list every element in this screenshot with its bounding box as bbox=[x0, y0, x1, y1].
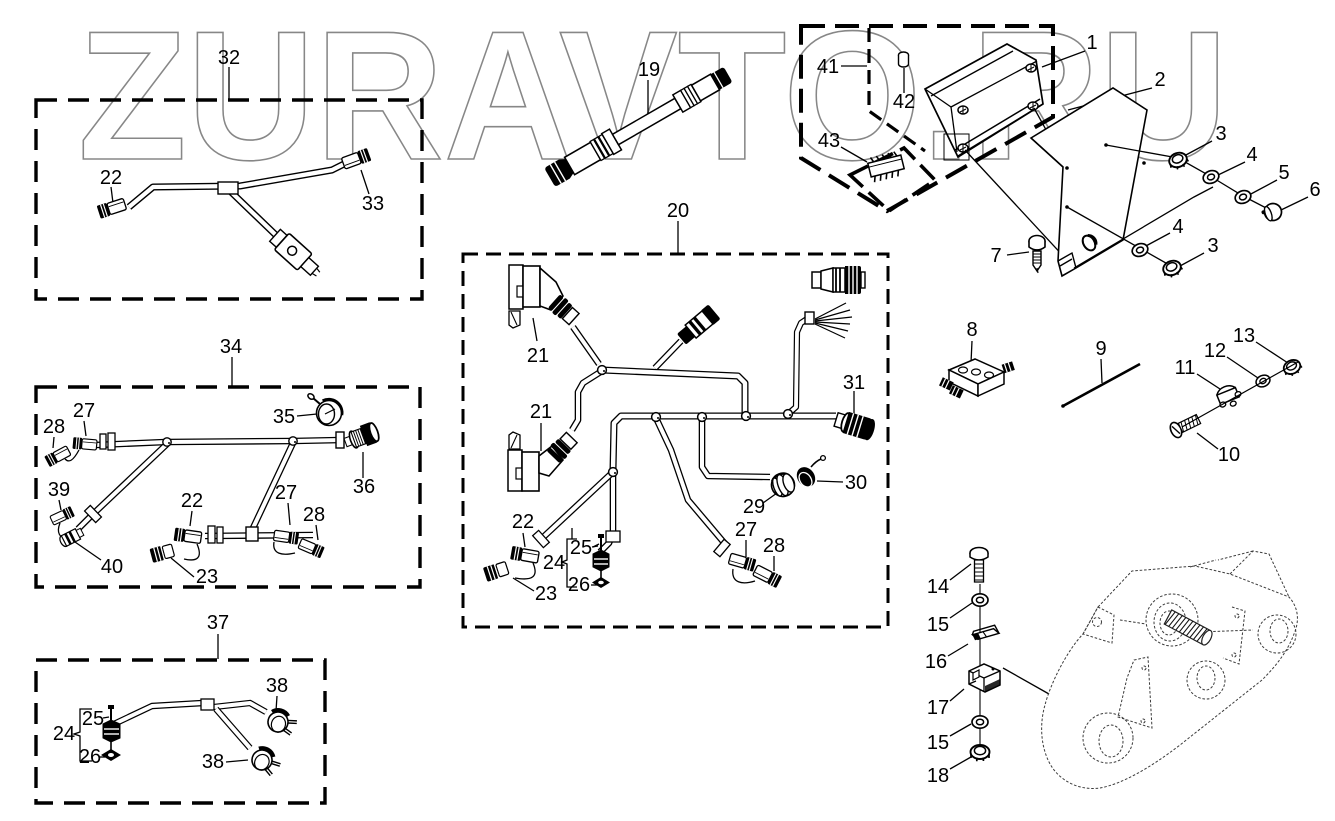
svg-text:27: 27 bbox=[275, 482, 297, 504]
svg-text:15: 15 bbox=[927, 614, 949, 636]
svg-text:32: 32 bbox=[218, 47, 240, 69]
svg-text:29: 29 bbox=[743, 496, 765, 518]
svg-text:34: 34 bbox=[220, 336, 242, 358]
svg-text:28: 28 bbox=[303, 504, 325, 526]
svg-text:25: 25 bbox=[570, 537, 592, 559]
svg-text:26: 26 bbox=[568, 574, 590, 596]
svg-text:11: 11 bbox=[1175, 357, 1196, 379]
svg-text:19: 19 bbox=[638, 59, 660, 81]
svg-text:4: 4 bbox=[1172, 216, 1183, 238]
svg-text:31: 31 bbox=[843, 372, 865, 394]
svg-text:10: 10 bbox=[1218, 444, 1240, 466]
svg-text:39: 39 bbox=[48, 479, 70, 501]
svg-text:7: 7 bbox=[990, 245, 1001, 267]
svg-text:3: 3 bbox=[1207, 235, 1218, 257]
svg-text:23: 23 bbox=[196, 566, 218, 588]
svg-text:18: 18 bbox=[927, 765, 949, 787]
svg-text:30: 30 bbox=[845, 472, 867, 494]
svg-text:15: 15 bbox=[927, 732, 949, 754]
svg-text:22: 22 bbox=[100, 167, 122, 189]
svg-text:6: 6 bbox=[1309, 179, 1320, 201]
svg-text:5: 5 bbox=[1278, 162, 1289, 184]
svg-text:43: 43 bbox=[818, 130, 840, 152]
svg-text:24: 24 bbox=[53, 723, 75, 745]
svg-text:27: 27 bbox=[735, 519, 757, 541]
svg-text:24: 24 bbox=[543, 552, 565, 574]
svg-text:28: 28 bbox=[43, 416, 65, 438]
svg-text:4: 4 bbox=[1246, 144, 1257, 166]
svg-text:37: 37 bbox=[207, 612, 229, 634]
svg-text:1: 1 bbox=[1086, 32, 1097, 54]
svg-text:3: 3 bbox=[1215, 123, 1226, 145]
svg-text:25: 25 bbox=[82, 708, 104, 730]
svg-text:27: 27 bbox=[73, 400, 95, 422]
svg-text:20: 20 bbox=[667, 200, 689, 222]
svg-text:33: 33 bbox=[362, 193, 384, 215]
svg-text:38: 38 bbox=[266, 675, 288, 697]
svg-text:41: 41 bbox=[817, 56, 839, 78]
svg-text:40: 40 bbox=[101, 556, 123, 578]
svg-text:17: 17 bbox=[927, 697, 949, 719]
svg-text:21: 21 bbox=[527, 345, 549, 367]
svg-text:ZURAVTO.RU: ZURAVTO.RU bbox=[78, 0, 1228, 198]
svg-text:23: 23 bbox=[535, 583, 557, 605]
svg-text:28: 28 bbox=[763, 535, 785, 557]
svg-text:21: 21 bbox=[530, 401, 552, 423]
svg-text:42: 42 bbox=[893, 91, 915, 113]
svg-text:36: 36 bbox=[353, 476, 375, 498]
svg-text:14: 14 bbox=[927, 576, 949, 598]
svg-text:16: 16 bbox=[925, 651, 947, 673]
svg-text:22: 22 bbox=[512, 511, 534, 533]
svg-text:8: 8 bbox=[966, 319, 977, 341]
svg-text:13: 13 bbox=[1233, 325, 1255, 347]
svg-text:26: 26 bbox=[79, 746, 101, 768]
svg-text:38: 38 bbox=[202, 751, 224, 773]
svg-text:12: 12 bbox=[1204, 340, 1226, 362]
svg-text:9: 9 bbox=[1095, 338, 1106, 360]
svg-text:2: 2 bbox=[1154, 69, 1165, 91]
svg-text:35: 35 bbox=[273, 406, 295, 428]
svg-text:22: 22 bbox=[181, 490, 203, 512]
